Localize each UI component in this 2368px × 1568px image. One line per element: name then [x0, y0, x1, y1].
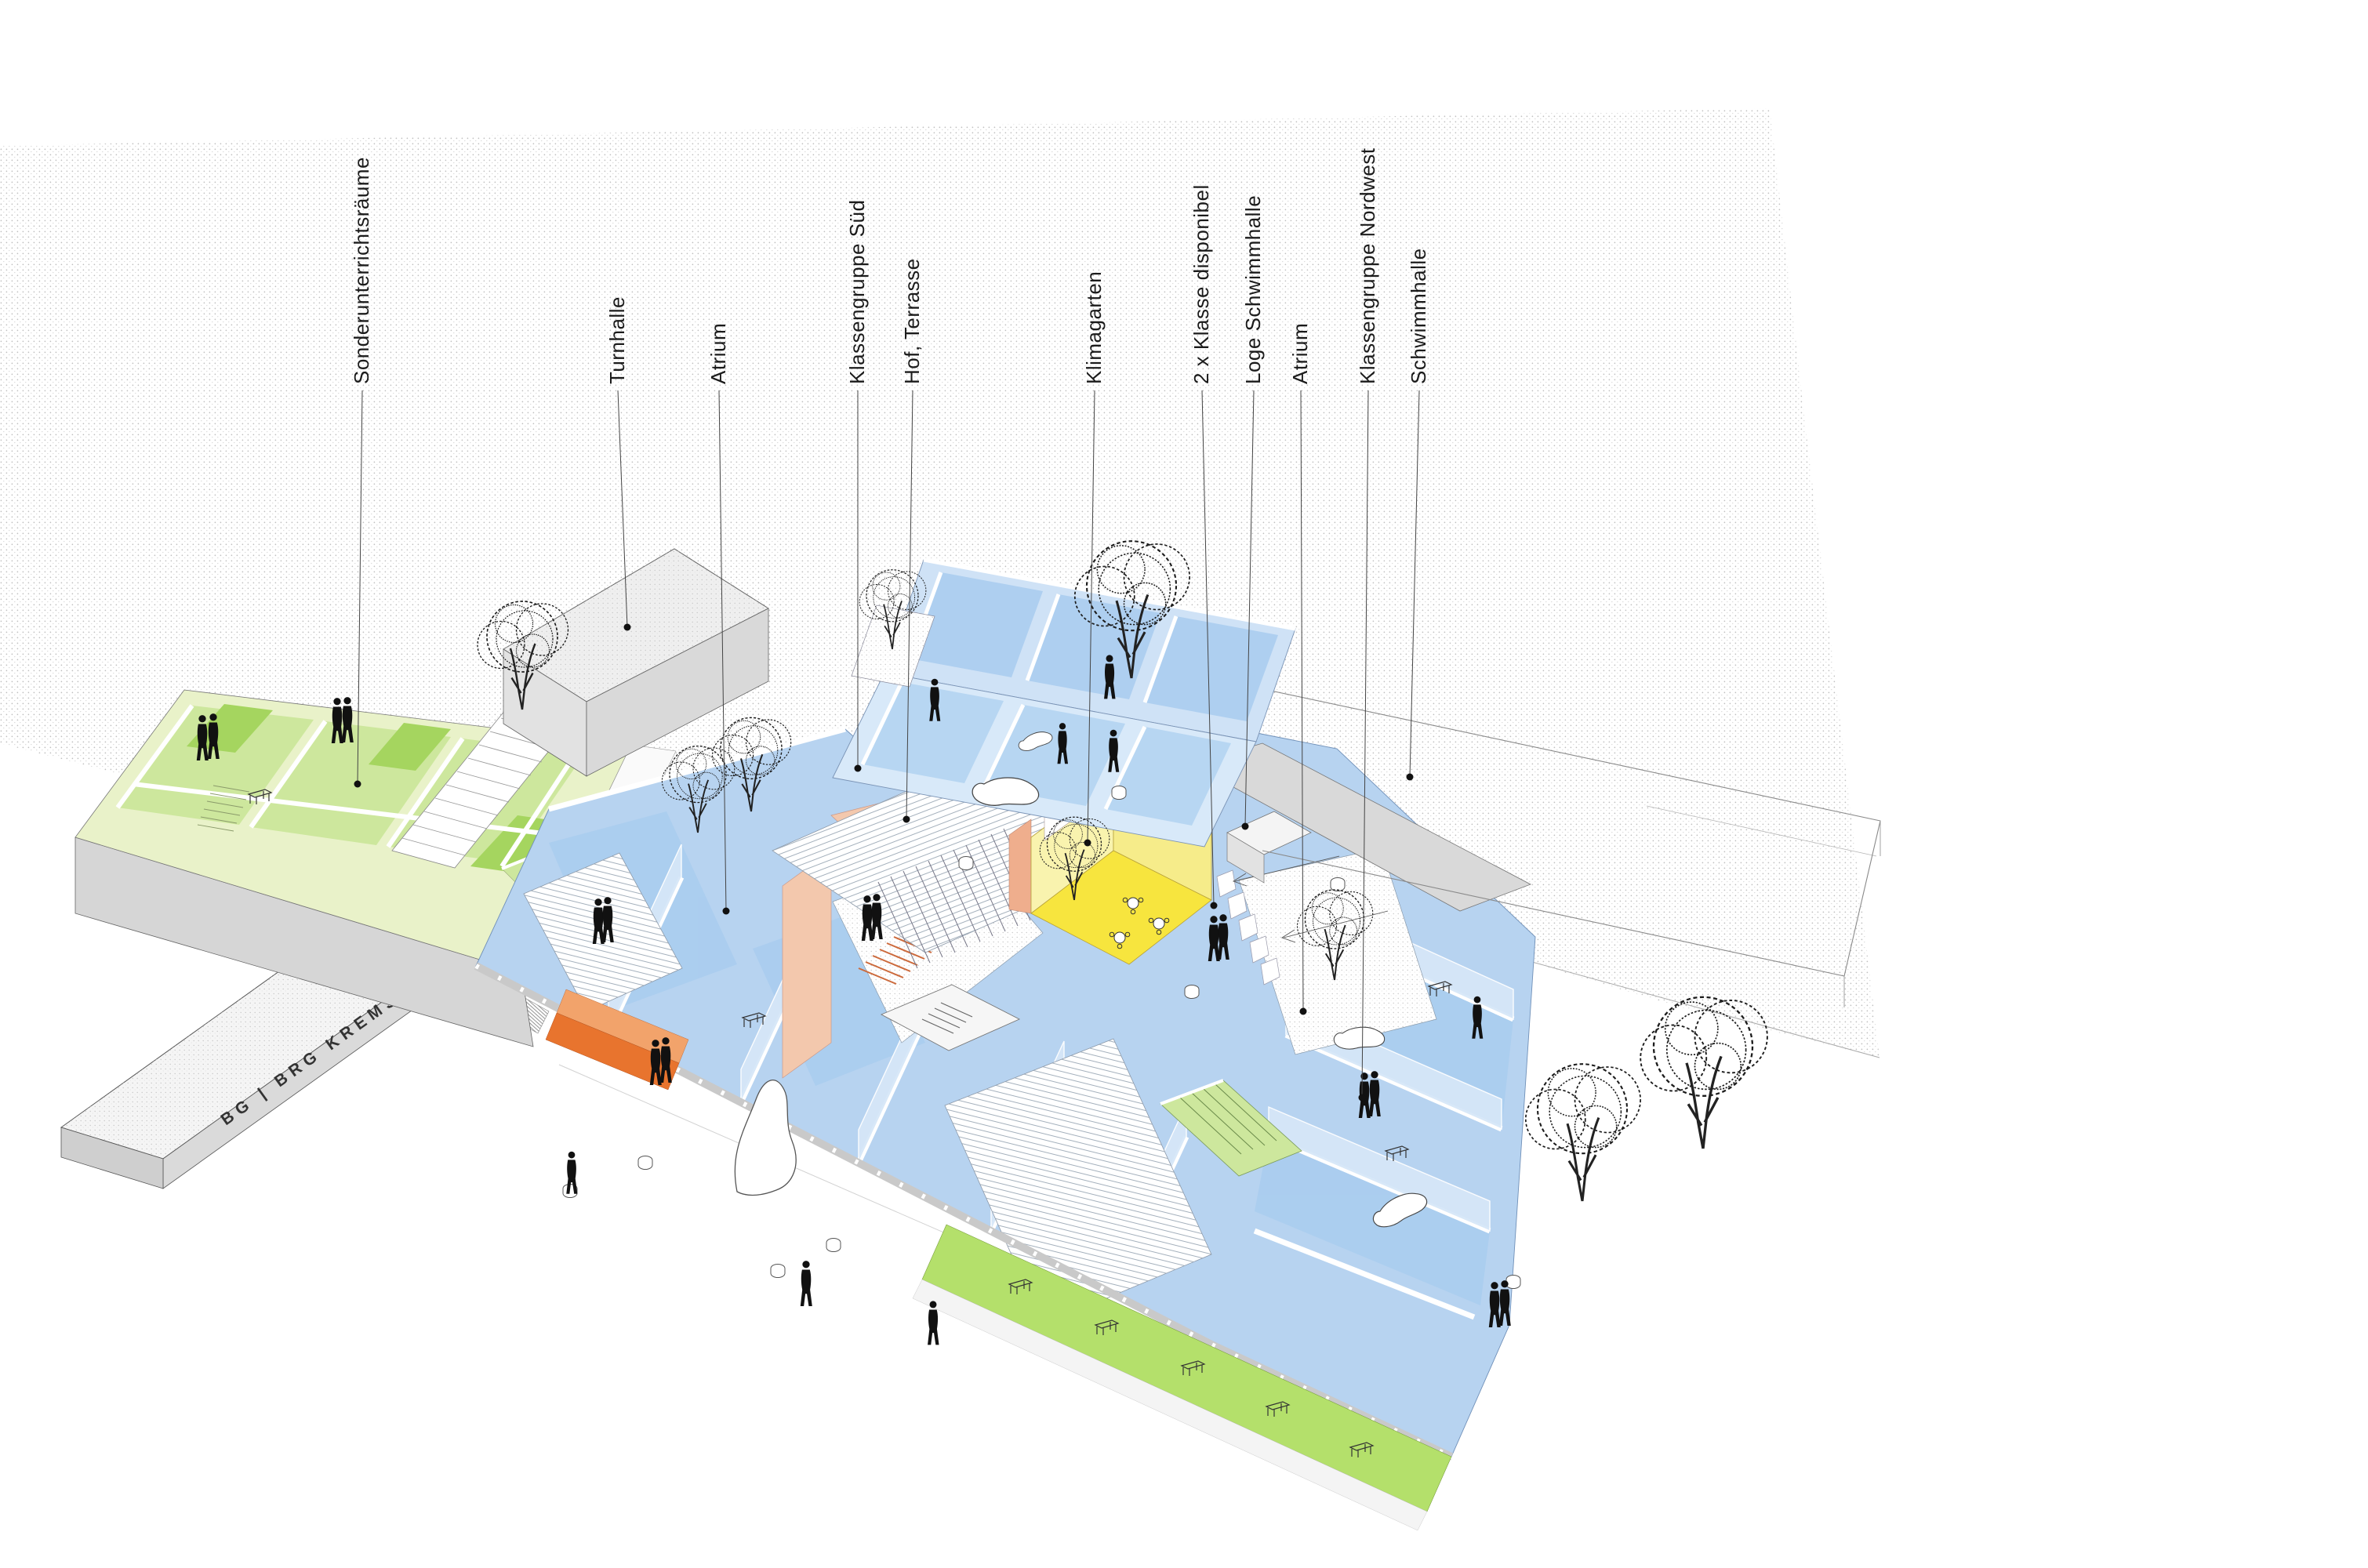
label-schwimmhalle: Schwimmhalle: [1407, 248, 1430, 384]
diagram-canvas: BG | BRG KREMS: [0, 0, 2368, 1568]
label-loge-schwimmhalle: Loge Schwimmhalle: [1241, 195, 1265, 384]
label-hof-terrasse: Hof, Terrasse: [900, 258, 924, 384]
label-klimagarten: Klimagarten: [1082, 271, 1106, 384]
label-klasse-disponibel: 2 x Klasse disponibel: [1189, 184, 1213, 384]
label-klassengruppe-sued: Klassengruppe Süd: [845, 200, 869, 384]
label-atrium-ost: Atrium: [1288, 323, 1312, 384]
label-atrium-west: Atrium: [706, 323, 730, 384]
label-klassengruppe-nordwest: Klassengruppe Nordwest: [1356, 147, 1379, 384]
architectural-axonometric-diagram: BG | BRG KREMS: [0, 0, 2368, 1568]
label-turnhalle: Turnhalle: [605, 296, 629, 384]
label-sonderunterrichtsraeume: Sonderunterrichtsräume: [350, 157, 373, 384]
